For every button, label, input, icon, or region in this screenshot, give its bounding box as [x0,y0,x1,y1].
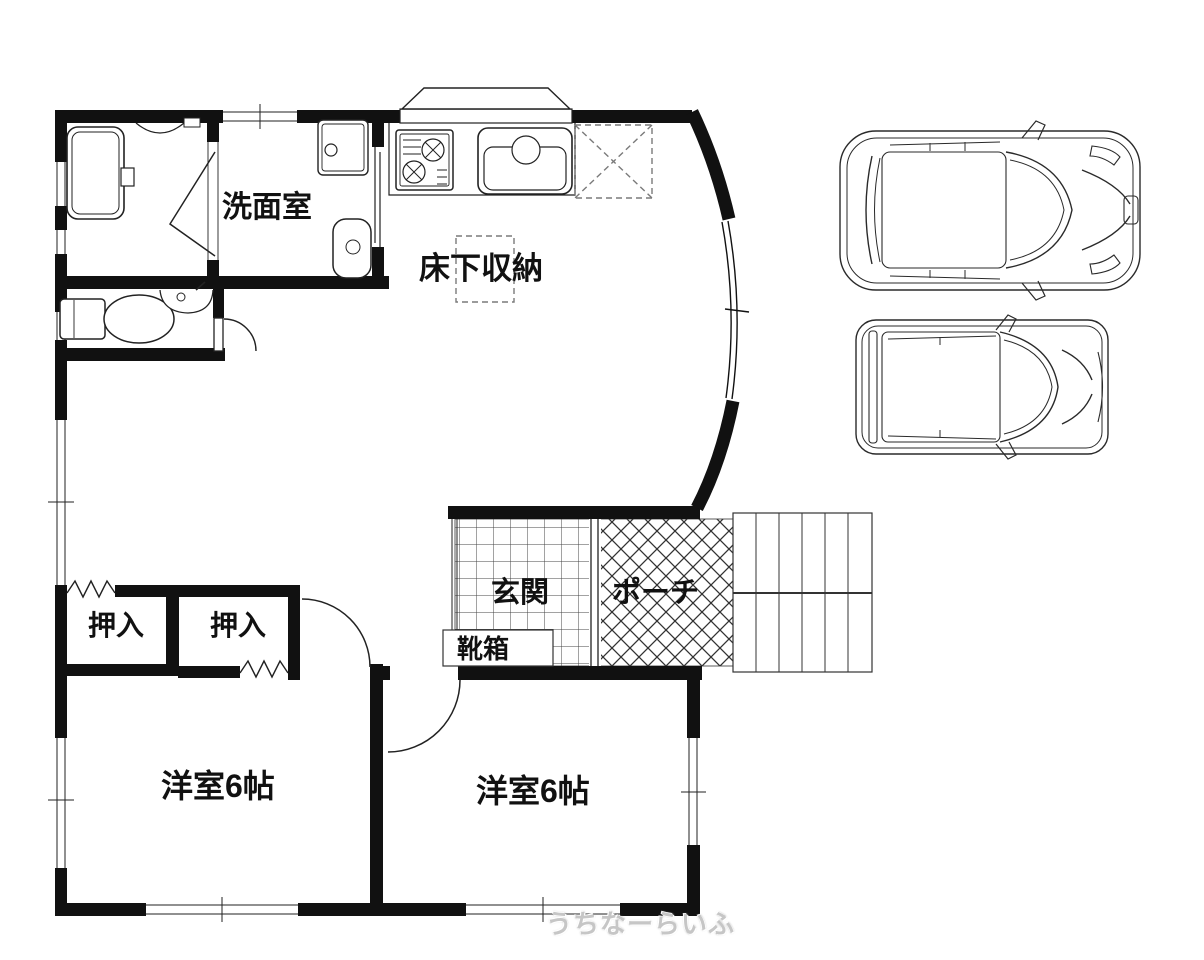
room-label-closet-right: 押入 [210,612,266,640]
front-door [589,519,601,666]
room-label-shoe-box: 靴箱 [457,636,509,662]
vanity-sink [333,219,371,278]
refrigerator-space [575,125,652,198]
range-hood [400,88,572,123]
washing-machine-pan [318,120,368,175]
curved-wall [692,112,733,508]
room-label-bedroom-right: 洋室6帖 [476,775,590,807]
toilet [60,295,174,343]
gas-stove [396,130,453,190]
curved-window [722,221,749,399]
car-hatchback [840,121,1140,300]
room-label-washroom: 洗面室 [222,193,312,223]
bathtub [67,118,200,219]
doors [67,142,460,752]
watermark: うちなーらいふ [546,911,735,937]
room-label-bedroom-left: 洋室6帖 [161,770,275,802]
room-label-closet-left: 押入 [88,612,144,640]
room-label-entrance: 玄関 [491,579,549,608]
room-label-porch: ポーチ [612,579,699,608]
kitchen-sink [478,128,572,194]
room-label-underfloor-storage: 床下収納 [419,253,543,284]
floor-plan-drawing [0,0,1204,960]
floor-plan-image: 洗面室 床下収納 押入 押入 玄関 ポーチ 靴箱 洋室6帖 洋室6帖 うちなーら… [0,0,1204,960]
approach-steps [733,513,872,672]
car-van [856,315,1108,459]
